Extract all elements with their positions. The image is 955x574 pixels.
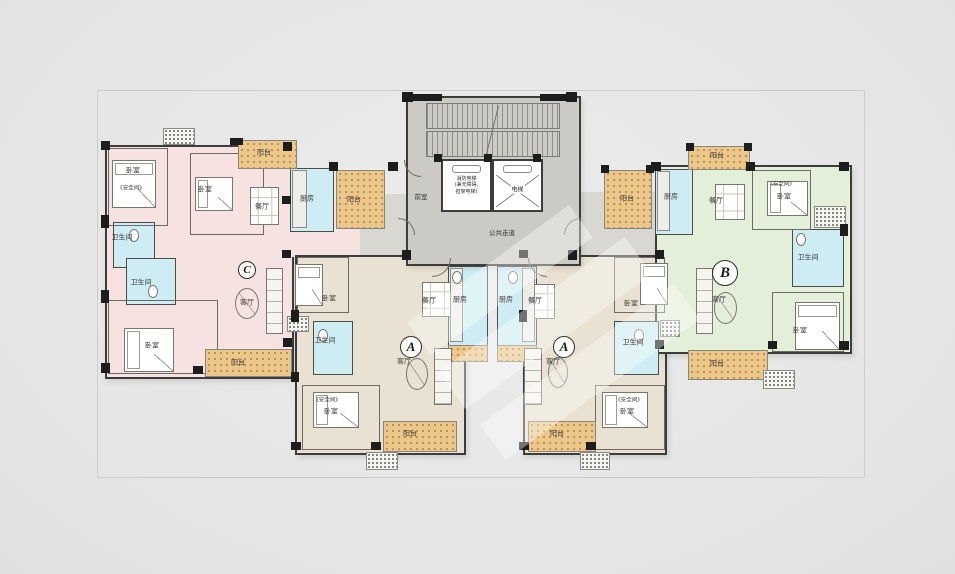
unit-marker-a-left: A <box>400 336 422 358</box>
label-dining-al: 餐厅 <box>422 298 436 305</box>
kitchen-counter <box>657 171 670 231</box>
bed-pillow <box>127 331 140 369</box>
bed-fold-line <box>218 197 232 210</box>
structural-column <box>568 250 577 260</box>
label-kitchen-ar: 厨房 <box>499 297 513 304</box>
structural-column <box>744 143 752 151</box>
structural-column <box>533 154 541 162</box>
structural-column <box>586 442 596 450</box>
bed-pillow <box>298 267 320 278</box>
label-balcony-b-bottom: 阳台 <box>710 361 724 368</box>
label-bedroom-b1: 卧室 <box>777 194 791 201</box>
label-bedroom-c2: 卧室 <box>198 187 212 194</box>
structural-column <box>519 310 527 322</box>
label-safe-room-b: 《安全间》 <box>767 182 795 188</box>
label-balcony-al: 阳台 <box>403 431 417 438</box>
toilet-icon <box>796 233 806 246</box>
structural-column <box>371 442 381 450</box>
label-living-b: 客厅 <box>712 297 726 304</box>
label-bedroom-al1: 卧室 <box>322 296 336 303</box>
label-dining-c: 餐厅 <box>255 204 269 211</box>
structural-column <box>655 340 664 349</box>
ac-unit-pad <box>366 452 398 470</box>
structural-column <box>388 162 398 171</box>
label-balcony-c-mid: 阳台 <box>347 197 361 204</box>
label-bath-al: 卫生间 <box>315 338 336 345</box>
unit-marker-c: C <box>238 261 256 279</box>
label-living-al: 客厅 <box>397 359 411 366</box>
structural-column <box>839 341 849 350</box>
elevator-door-icon <box>503 165 532 173</box>
label-living-c: 客厅 <box>240 300 254 307</box>
ac-unit-pad <box>763 370 795 389</box>
bed <box>295 264 323 306</box>
structural-column <box>840 224 848 236</box>
structural-column <box>291 442 301 450</box>
bed-pillow <box>643 266 665 277</box>
bed-pillow <box>198 180 208 208</box>
ac-unit-pad <box>163 128 195 145</box>
bed <box>195 177 233 211</box>
label-balcony-c-top: 阳台 <box>257 150 271 157</box>
label-bath-b: 卫生间 <box>798 255 819 262</box>
floorplan: 消防电梯 (兼无障碍, 担架电梯) 电梯 前室 公共走道 卧室《安全间》卧室餐厅… <box>0 0 955 574</box>
structural-column <box>291 372 299 382</box>
passenger-elevator: 电梯 <box>492 159 543 212</box>
label-safe-room-c1: 《安全间》 <box>117 186 145 192</box>
structural-column <box>768 341 777 349</box>
balcony-a-left <box>383 421 457 452</box>
ac-unit-pad <box>660 320 680 337</box>
label-bedroom-al2: 卧室 <box>324 409 338 416</box>
label-bedroom-ar2: 卧室 <box>620 409 634 416</box>
label-balcony-c-bottom: 阳台 <box>231 360 245 367</box>
sofa <box>434 348 452 405</box>
ac-unit-pad <box>580 452 610 470</box>
bed-fold-line <box>154 354 173 371</box>
structural-column <box>101 290 109 303</box>
label-safe-room-ar: 《安全间》 <box>615 398 643 404</box>
bed-fold-line <box>657 288 667 304</box>
unit-marker-b: B <box>712 260 738 286</box>
label-bath-c-lower: 卫生间 <box>131 280 152 287</box>
structural-column <box>519 250 528 258</box>
label-balcony-b-mid: 阳台 <box>620 196 634 203</box>
bed-fold-line <box>791 202 807 215</box>
label-bedroom-c1: 卧室 <box>126 168 140 175</box>
structural-column <box>329 162 338 171</box>
label-dining-b: 餐厅 <box>709 198 723 205</box>
bath-a-left <box>313 321 353 375</box>
label-bedroom-ar1: 卧室 <box>624 301 638 308</box>
structural-column <box>402 250 411 260</box>
label-bath-c-upper: 卫生间 <box>112 235 133 242</box>
fire-elevator: 消防电梯 (兼无障碍, 担架电梯) <box>441 159 492 212</box>
bed <box>124 328 174 372</box>
structural-column <box>434 154 442 162</box>
structural-column <box>283 142 292 151</box>
structural-column <box>101 363 110 373</box>
unit-marker-a-right: A <box>553 336 575 358</box>
structural-column <box>646 165 654 173</box>
label-balcony-ar: 阳台 <box>550 431 564 438</box>
public-corridor-label: 公共走道 <box>489 227 515 237</box>
structural-column <box>686 143 694 151</box>
structural-column <box>193 366 203 374</box>
label-kitchen-b: 厨房 <box>664 194 678 201</box>
structural-column <box>601 165 609 173</box>
toilet-icon <box>148 285 158 298</box>
balcony-b-bottom <box>688 350 768 380</box>
structural-column <box>282 196 291 204</box>
staircase <box>426 103 558 157</box>
structural-column <box>519 442 529 450</box>
label-kitchen-al: 厨房 <box>453 297 467 304</box>
structural-column <box>406 94 442 101</box>
lobby-label: 前室 <box>415 191 428 201</box>
structural-column <box>101 141 110 150</box>
structural-column <box>655 250 664 259</box>
structural-column <box>540 94 576 101</box>
label-bedroom-b2: 卧室 <box>793 328 807 335</box>
stair-flight-upper <box>426 103 560 129</box>
toilet-icon <box>452 271 462 284</box>
balcony-c-bottom <box>205 349 292 377</box>
sofa <box>696 268 713 334</box>
passenger-elevator-label: 电梯 <box>510 185 524 194</box>
label-bath-ar: 卫生间 <box>623 340 644 347</box>
bed-fold-line <box>312 289 322 305</box>
sofa <box>266 268 283 334</box>
floorplan-canvas: 消防电梯 (兼无障碍, 担架电梯) 电梯 前室 公共走道 卧室《安全间》卧室餐厅… <box>0 0 955 574</box>
toilet-icon <box>508 271 518 284</box>
structural-column <box>282 250 291 258</box>
fire-elevator-label: 消防电梯 (兼无障碍, 担架电梯) <box>443 176 490 195</box>
label-kitchen-c: 厨房 <box>300 196 314 203</box>
stair-core: 消防电梯 (兼无障碍, 担架电梯) 电梯 前室 公共走道 <box>406 96 581 266</box>
structural-column <box>746 162 755 171</box>
bed-fold-line <box>340 413 358 427</box>
label-safe-room-al: 《安全间》 <box>313 398 341 404</box>
structural-column <box>230 138 243 145</box>
bed-fold-line <box>822 331 839 349</box>
structural-column <box>839 162 849 171</box>
label-living-ar: 客厅 <box>546 359 560 366</box>
label-dining-ar: 餐厅 <box>528 298 542 305</box>
service-balcony-left <box>448 345 488 362</box>
sofa <box>524 348 542 405</box>
structural-column <box>101 215 109 228</box>
elevator-door-icon <box>452 165 481 173</box>
label-bedroom-c3: 卧室 <box>145 343 159 350</box>
structural-column <box>283 338 292 347</box>
label-balcony-b-top: 阳台 <box>710 153 724 160</box>
structural-column <box>484 154 492 162</box>
bed-pillow <box>798 305 837 317</box>
structural-column <box>291 310 299 322</box>
bed <box>640 263 668 305</box>
kitchen-counter <box>522 268 535 342</box>
